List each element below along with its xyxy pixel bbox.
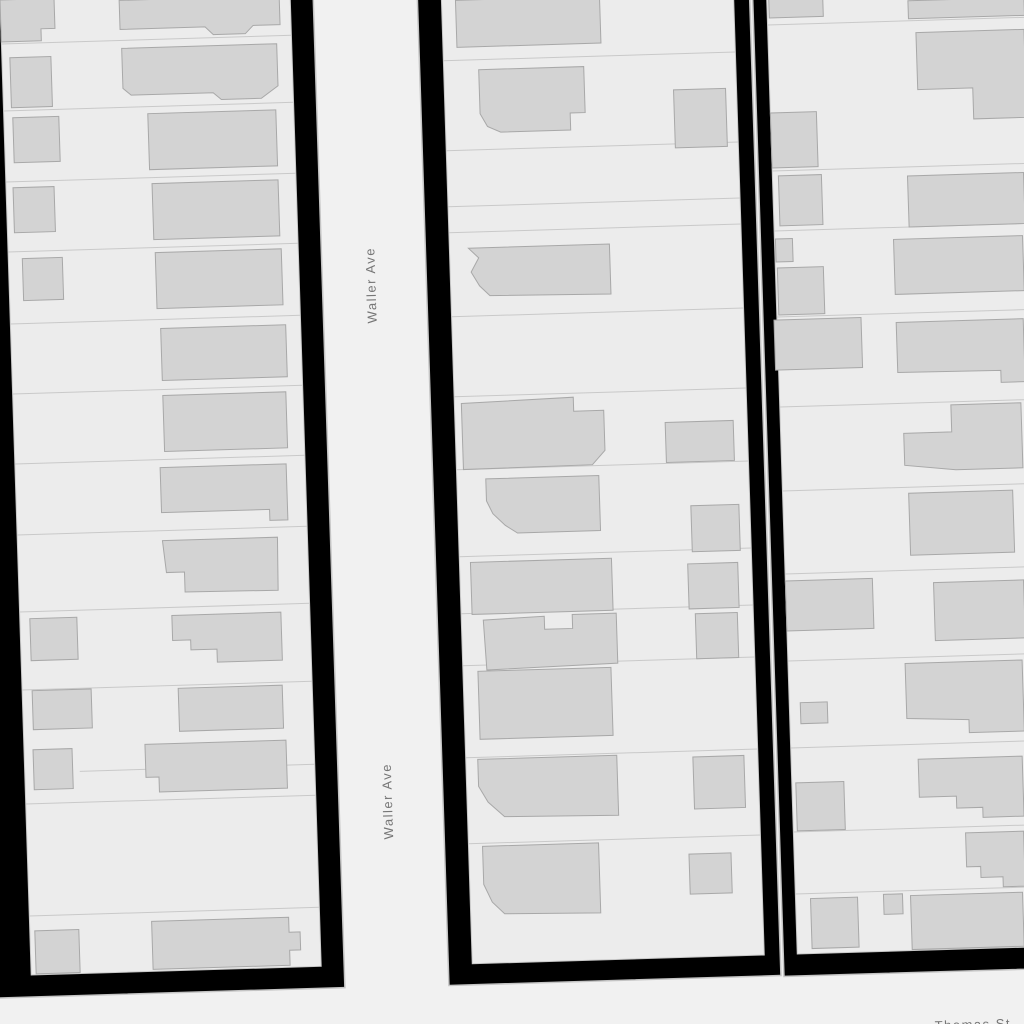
building-footprint	[693, 755, 746, 809]
building-footprint	[468, 244, 611, 298]
street-label: Waller Ave	[379, 763, 396, 840]
city-block-east-block	[751, 0, 1024, 976]
building-footprint	[689, 853, 732, 894]
building-footprint	[777, 267, 825, 315]
building-footprint	[691, 504, 740, 551]
building-footprint	[13, 116, 60, 162]
building-footprint	[785, 578, 874, 631]
building-footprint	[894, 236, 1024, 295]
building-footprint	[769, 0, 824, 18]
building-footprint	[161, 325, 288, 381]
building-footprint	[145, 740, 288, 792]
building-footprint	[35, 930, 80, 974]
building-footprint	[178, 685, 283, 731]
building-footprint	[695, 612, 738, 658]
building-footprint	[148, 110, 278, 170]
building-footprint	[674, 88, 728, 148]
building-footprint	[33, 749, 73, 790]
building-footprint	[22, 257, 63, 300]
building-footprint	[10, 57, 53, 108]
map-canvas[interactable]: Waller AveWaller AveThomas St	[0, 0, 1024, 1024]
building-footprint	[800, 702, 828, 724]
building-footprint	[478, 755, 619, 819]
building-footprint	[665, 420, 734, 462]
building-footprint	[455, 0, 601, 47]
building-footprint	[163, 392, 288, 452]
building-footprint	[688, 562, 739, 609]
building-footprint	[470, 558, 613, 614]
city-block-center-block	[416, 0, 781, 985]
building-footprint	[796, 781, 846, 830]
building-footprint	[909, 490, 1015, 555]
building-footprint	[907, 172, 1024, 226]
building-footprint	[811, 897, 860, 948]
building-footprint	[770, 112, 818, 168]
map-viewport: Waller AveWaller AveThomas St	[0, 0, 1024, 1024]
building-footprint	[155, 249, 283, 309]
building-footprint	[479, 67, 586, 133]
street-label: Waller Ave	[362, 247, 379, 324]
building-footprint	[152, 180, 280, 240]
building-footprint	[908, 0, 1024, 19]
building-footprint	[934, 580, 1024, 641]
building-footprint	[478, 667, 613, 739]
building-footprint	[883, 894, 903, 915]
building-footprint	[483, 843, 601, 916]
building-footprint	[778, 175, 823, 226]
building-footprint	[30, 617, 78, 660]
building-footprint	[152, 917, 302, 969]
street-label: Thomas St	[934, 1016, 1011, 1024]
building-footprint	[911, 892, 1024, 949]
building-footprint	[32, 689, 92, 730]
building-footprint	[774, 318, 863, 371]
city-block-west-block	[0, 0, 345, 999]
building-footprint	[13, 187, 55, 233]
building-footprint	[775, 238, 793, 262]
